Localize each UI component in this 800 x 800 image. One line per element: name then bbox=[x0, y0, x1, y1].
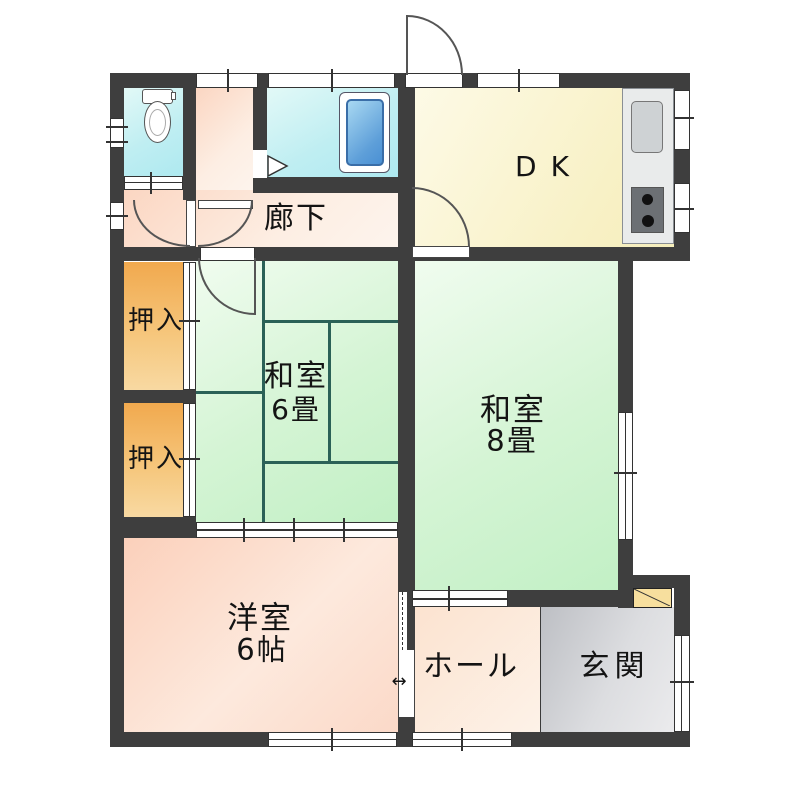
corridor-label: 廊下 bbox=[264, 204, 328, 234]
sliding-door-mid bbox=[197, 529, 397, 531]
back-door-panel bbox=[406, 15, 408, 75]
window-kitchen-1 bbox=[674, 90, 690, 150]
floorplan: ↔ 廊下 DK 押入 押入 和室 6畳 和室 8畳 洋室 6帖 ホール 玄関 bbox=[0, 0, 800, 800]
window-tick bbox=[331, 728, 333, 751]
washitsu6-size: 6畳 bbox=[271, 396, 321, 424]
toilet-seat-line bbox=[149, 109, 166, 136]
window-tick bbox=[614, 472, 637, 474]
wall-toilet-right bbox=[183, 73, 196, 200]
wall-bath-bottom bbox=[253, 177, 398, 193]
back-door-opening bbox=[405, 73, 463, 88]
washroom-strip-floor bbox=[196, 88, 253, 190]
fusuma-mid bbox=[189, 263, 190, 389]
closet-lower-label: 押入 bbox=[128, 446, 184, 472]
wall-bottom bbox=[110, 732, 690, 747]
tatami-line bbox=[328, 322, 331, 464]
tatami-line bbox=[262, 461, 398, 464]
washitsu6-door-panel bbox=[254, 258, 256, 315]
bath-door-opening bbox=[253, 150, 267, 178]
stove-burner bbox=[642, 215, 654, 227]
stove-burner bbox=[642, 194, 653, 205]
youshitsu-size: 6帖 bbox=[236, 636, 287, 665]
genkan-label: 玄関 bbox=[575, 652, 650, 682]
sliding-door-toilet bbox=[124, 176, 183, 190]
closet-upper-label: 押入 bbox=[128, 308, 184, 334]
sliding-door-tick bbox=[243, 518, 245, 542]
window-toilet-left bbox=[110, 118, 124, 148]
window-mid bbox=[625, 413, 626, 539]
dk-label: DK bbox=[501, 153, 583, 181]
kitchen-sink-icon bbox=[631, 101, 663, 153]
wall-closet-bottom bbox=[110, 517, 196, 538]
sliding-door-tick bbox=[150, 172, 152, 194]
sliding-door-mid bbox=[125, 182, 182, 183]
sliding-door-tick bbox=[343, 518, 345, 542]
wall-closet-divider bbox=[124, 390, 196, 403]
window-tick bbox=[518, 69, 520, 92]
window-mid bbox=[269, 739, 396, 740]
window-tick bbox=[670, 681, 694, 683]
washitsu8-label: 和室 bbox=[480, 396, 546, 427]
sliding-door-mid bbox=[413, 598, 507, 600]
slide-direction-arrow-icon: ↔ bbox=[391, 673, 406, 691]
washitsu6-label: 和室 bbox=[264, 362, 328, 392]
youshitsu-label: 洋室 bbox=[227, 604, 293, 635]
tatami-line bbox=[196, 391, 262, 394]
window-tick bbox=[106, 141, 128, 143]
window-tick bbox=[106, 215, 128, 217]
back-door-arc bbox=[407, 15, 463, 75]
washitsu8-size: 8畳 bbox=[486, 427, 537, 456]
bath-folding-door-icon bbox=[266, 153, 290, 179]
entrance-door-mid bbox=[681, 636, 682, 731]
sliding-door-tick bbox=[293, 518, 295, 542]
bathtub-inner bbox=[346, 99, 384, 166]
window-tick bbox=[106, 126, 128, 128]
window-tick bbox=[461, 728, 463, 751]
entrance-door bbox=[674, 635, 690, 732]
sliding-door-tick bbox=[448, 586, 450, 611]
pocket-door-dash bbox=[402, 592, 403, 650]
window-tick bbox=[227, 69, 229, 92]
window-tick bbox=[331, 69, 333, 92]
toilet-flush-handle bbox=[171, 92, 176, 100]
wall-left bbox=[110, 73, 124, 747]
shoe-cabinet-icon bbox=[633, 588, 672, 608]
fusuma-mid bbox=[189, 404, 190, 516]
hall-label: ホール bbox=[423, 652, 519, 682]
dk-door-panel bbox=[412, 246, 470, 258]
